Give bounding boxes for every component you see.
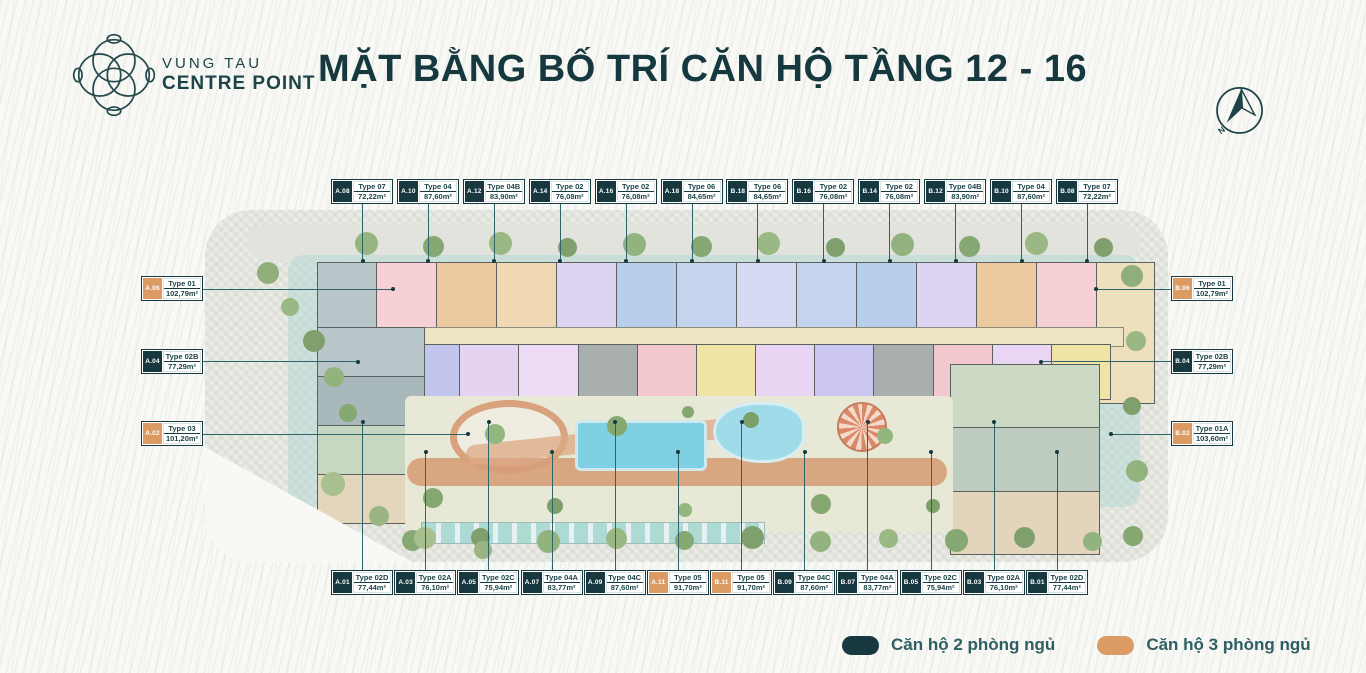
unit-type-label: Type 02 [552,182,588,192]
unit-code-badge: B.16 [794,181,813,202]
unit-callout: A.08 Type 07 72,22m² [331,179,393,204]
unit-info-box: Type 02C 75,94m² [479,572,517,593]
unit-type-label: Type 04C [796,573,832,583]
unit-callout: B.08 Type 07 72,22m² [1056,179,1118,204]
unit-type-label: Type 04 [420,182,456,192]
unit-area-label: 103,60m² [1194,434,1230,443]
unit-callout: A.03 Type 02A 76,10m² [394,570,456,595]
unit-info-box: Type 01 102,79m² [1193,278,1231,299]
unit-info-box: Type 04B 83,90m² [946,181,984,202]
unit-area-label: 76,08m² [881,192,917,201]
unit-code-badge: A.14 [531,181,550,202]
unit-area-label: 76,08m² [815,192,851,201]
leader-line [804,452,805,570]
unit-code-badge: B.04 [1173,351,1192,372]
unit-callout: B.10 Type 04 87,60m² [990,179,1052,204]
unit-code-badge: A.09 [586,572,605,593]
compass-north-label: N [1216,124,1227,136]
unit-info-box: Type 02A 76,10m² [985,572,1023,593]
legend-color-swatch [1097,636,1134,655]
leader-line [488,422,489,570]
unit-code-badge: A.11 [649,572,668,593]
unit-area-label: 102,79m² [164,289,200,298]
leader-line [757,204,758,261]
tree-row-right [1121,265,1143,287]
unit-type-label: Type 04B [486,182,522,192]
brand-name: VUNG TAU CENTRE POINT [162,56,315,94]
unit-area-label: 84,65m² [684,192,720,201]
unit-callout: A.16 Type 02 76,08m² [595,179,657,204]
right-tower [950,365,1100,555]
site-plan [205,210,1168,562]
leader-line [615,422,616,570]
leader-line [1096,289,1171,290]
unit-type-label: Type 04B [947,182,983,192]
unit-info-box: Type 02A 76,10m² [416,572,454,593]
leader-line [867,422,868,570]
legend: Căn hộ 2 phòng ngủ Căn hộ 3 phòng ngủ [842,635,1311,655]
unit-code-badge: B.07 [838,572,857,593]
unit-type-label: Type 05 [733,573,769,583]
unit-block [916,262,977,328]
unit-area-label: 77,29m² [1194,362,1230,371]
unit-callout: B.05 Type 02C 75,94m² [900,570,962,595]
unit-code-badge: A.18 [663,181,682,202]
unit-block [1036,262,1097,328]
unit-info-box: Type 01 102,79m² [163,278,201,299]
brand-line1: VUNG TAU [162,56,315,73]
unit-block [317,327,425,377]
unit-callout: A.06 Type 01 102,79m² [141,276,203,301]
unit-code-badge: B.03 [965,572,984,593]
legend-label: Căn hộ 3 phòng ngủ [1146,635,1310,655]
unit-callout: A.10 Type 04 87,60m² [397,179,459,204]
unit-block [736,262,797,328]
unit-block [755,344,815,400]
unit-callout: B.02 Type 01A 103,60m² [1171,421,1233,446]
unit-info-box: Type 06 84,65m² [683,181,721,202]
unit-block [637,344,697,400]
brand-logo-icon [72,33,156,117]
unit-info-box: Type 04A 83,77m² [858,572,896,593]
unit-code-badge: A.03 [396,572,415,593]
unit-code-badge: A.01 [333,572,352,593]
unit-callout: A.14 Type 02 76,08m² [529,179,591,204]
unit-block [950,364,1100,428]
unit-info-box: Type 02 76,08m² [814,181,852,202]
unit-block [616,262,677,328]
unit-code-badge: B.02 [1173,423,1192,444]
leader-line [428,204,429,261]
unit-area-label: 75,94m² [923,583,959,592]
unit-block [556,262,617,328]
leader-line [931,452,932,570]
unit-info-box: Type 03 101,20m² [163,423,201,444]
unit-area-label: 77,44m² [1049,583,1085,592]
unit-area-label: 87,60m² [796,583,832,592]
unit-callout: A.12 Type 04B 83,90m² [463,179,525,204]
unit-code-badge: B.01 [1028,572,1047,593]
unit-type-label: Type 02B [1194,352,1230,362]
leader-line [1111,434,1171,435]
unit-code-badge: A.02 [143,423,162,444]
legend-color-swatch [842,636,879,655]
unit-code-badge: B.08 [1058,181,1077,202]
unit-callout: B.07 Type 04A 83,77m² [836,570,898,595]
leader-line [425,452,426,570]
page-title: MẶT BẰNG BỐ TRÍ CĂN HỘ TẦNG 12 - 16 [318,48,1078,91]
unit-block [856,262,917,328]
leader-line [678,452,679,570]
unit-type-label: Type 02A [986,573,1022,583]
unit-area-label: 77,29m² [164,362,200,371]
unit-callout: A.07 Type 04A 83,77m² [521,570,583,595]
leader-line [552,452,553,570]
unit-info-box: Type 02C 75,94m² [922,572,960,593]
unit-callout: A.05 Type 02C 75,94m² [457,570,519,595]
unit-callout: A.04 Type 02B 77,29m² [141,349,203,374]
unit-type-label: Type 07 [354,182,390,192]
unit-block [459,344,519,400]
unit-info-box: Type 04 87,60m² [419,181,457,202]
unit-type-label: Type 02 [881,182,917,192]
unit-code-badge: A.10 [399,181,418,202]
unit-callout: B.16 Type 02 76,08m² [792,179,854,204]
unit-callout: B.12 Type 04B 83,90m² [924,179,986,204]
unit-code-badge: A.04 [143,351,162,372]
unit-callout: A.09 Type 04C 87,60m² [584,570,646,595]
unit-block [950,427,1100,491]
unit-info-box: Type 02 76,08m² [551,181,589,202]
unit-callout: B.06 Type 01 102,79m² [1171,276,1233,301]
unit-type-label: Type 02D [354,573,390,583]
unit-type-label: Type 01 [164,279,200,289]
unit-block [796,262,857,328]
leader-line [203,434,468,435]
leader-line [1041,361,1171,362]
leader-line [626,204,627,261]
unit-type-label: Type 04C [607,573,643,583]
tree-row-parking [257,262,279,284]
unit-type-label: Type 02D [1049,573,1085,583]
leader-line [203,289,393,290]
unit-callout: B.18 Type 06 84,65m² [726,179,788,204]
playground-wheel [837,402,887,452]
unit-callout: B.03 Type 02A 76,10m² [963,570,1025,595]
unit-type-label: Type 01A [1194,424,1230,434]
unit-callout: B.09 Type 04C 87,60m² [773,570,835,595]
courtyard [405,396,953,532]
unit-area-label: 87,60m² [607,583,643,592]
unit-area-label: 76,08m² [552,192,588,201]
unit-block [814,344,874,400]
unit-code-badge: B.18 [728,181,747,202]
unit-code-badge: B.11 [712,572,731,593]
leader-line [1057,452,1058,570]
unit-callout: B.04 Type 02B 77,29m² [1171,349,1233,374]
unit-area-label: 91,70m² [670,583,706,592]
unit-type-label: Type 03 [164,424,200,434]
unit-info-box: Type 04B 83,90m² [485,181,523,202]
leader-line [362,204,363,261]
leader-line [1087,204,1088,261]
unit-block [976,262,1037,328]
unit-area-label: 83,77m² [859,583,895,592]
unit-code-badge: B.09 [775,572,794,593]
unit-block [436,262,497,328]
unit-type-label: Type 02C [480,573,516,583]
unit-block [873,344,933,400]
unit-area-label: 75,94m² [480,583,516,592]
leader-line [494,204,495,261]
unit-info-box: Type 02B 77,29m² [1193,351,1231,372]
floorplan-poster: VUNG TAU CENTRE POINT MẶT BẰNG BỐ TRÍ CĂ… [0,0,1366,673]
leader-line [692,204,693,261]
callouts-bottom: A.01 Type 02D 77,44m² A.03 Type 02A 76,1… [331,570,1088,595]
unit-info-box: Type 07 72,22m² [1078,181,1116,202]
unit-block [578,344,638,400]
unit-info-box: Type 05 91,70m² [732,572,770,593]
kids-pool [713,402,805,463]
unit-block [518,344,578,400]
unit-area-label: 102,79m² [1194,289,1230,298]
callouts-top: A.08 Type 07 72,22m² A.10 Type 04 87,60m… [331,179,1118,204]
unit-info-box: Type 02 76,08m² [880,181,918,202]
unit-info-box: Type 02 76,08m² [617,181,655,202]
unit-callout: A.01 Type 02D 77,44m² [331,570,393,595]
unit-area-label: 84,65m² [749,192,785,201]
unit-callout: A.18 Type 06 84,65m² [661,179,723,204]
brand-line2: CENTRE POINT [162,73,315,94]
leader-line [889,204,890,261]
unit-callout: A.11 Type 05 91,70m² [647,570,709,595]
unit-info-box: Type 04 87,60m² [1012,181,1050,202]
unit-area-label: 83,77m² [544,583,580,592]
unit-type-label: Type 04A [544,573,580,583]
legend-item: Căn hộ 2 phòng ngủ [842,635,1055,655]
leader-line [1021,204,1022,261]
unit-area-label: 72,22m² [1079,192,1115,201]
tree-row-top [355,232,378,255]
unit-callout: B.14 Type 02 76,08m² [858,179,920,204]
tile-walkway [421,522,765,544]
unit-info-box: Type 02D 77,44m² [1048,572,1086,593]
unit-code-badge: A.16 [597,181,616,202]
unit-type-label: Type 07 [1079,182,1115,192]
unit-area-label: 72,22m² [354,192,390,201]
unit-code-badge: A.12 [465,181,484,202]
unit-code-badge: B.06 [1173,278,1192,299]
leader-line [362,422,363,570]
unit-info-box: Type 02D 77,44m² [353,572,391,593]
unit-block [676,262,737,328]
unit-type-label: Type 06 [749,182,785,192]
unit-area-label: 101,20m² [164,434,200,443]
unit-code-badge: B.12 [926,181,945,202]
unit-info-box: Type 02B 77,29m² [163,351,201,372]
unit-type-label: Type 02 [618,182,654,192]
legend-label: Căn hộ 2 phòng ngủ [891,635,1055,655]
unit-area-label: 87,60m² [1013,192,1049,201]
unit-type-label: Type 02A [417,573,453,583]
unit-area-label: 76,08m² [618,192,654,201]
leader-line [994,422,995,570]
unit-type-label: Type 04 [1013,182,1049,192]
callouts-right: B.06 Type 01 102,79m² B.04 Type 02B 77,2… [1171,276,1233,446]
top-unit-strip [377,262,1097,328]
unit-area-label: 87,60m² [420,192,456,201]
leader-line [823,204,824,261]
unit-area-label: 83,90m² [947,192,983,201]
unit-type-label: Type 02B [164,352,200,362]
unit-type-label: Type 06 [684,182,720,192]
compass-icon: N [1208,80,1270,142]
unit-block [496,262,557,328]
unit-type-label: Type 01 [1194,279,1230,289]
unit-info-box: Type 07 72,22m² [353,181,391,202]
unit-block [950,491,1100,555]
unit-code-badge: A.08 [333,181,352,202]
unit-block [317,262,381,331]
unit-info-box: Type 01A 103,60m² [1193,423,1231,444]
unit-code-badge: B.05 [902,572,921,593]
leader-line [203,361,358,362]
unit-callout: B.11 Type 05 91,70m² [710,570,772,595]
unit-callout: A.02 Type 03 101,20m² [141,421,203,446]
unit-code-badge: B.10 [992,181,1011,202]
unit-info-box: Type 04A 83,77m² [543,572,581,593]
unit-type-label: Type 02 [815,182,851,192]
unit-code-badge: A.05 [459,572,478,593]
legend-item: Căn hộ 3 phòng ngủ [1097,635,1310,655]
swimming-pool [575,420,707,471]
unit-area-label: 91,70m² [733,583,769,592]
unit-type-label: Type 05 [670,573,706,583]
unit-area-label: 76,10m² [417,583,453,592]
unit-callout: B.01 Type 02D 77,44m² [1026,570,1088,595]
unit-area-label: 76,10m² [986,583,1022,592]
unit-code-badge: A.07 [523,572,542,593]
unit-block [376,262,437,328]
unit-code-badge: B.14 [860,181,879,202]
unit-block [696,344,756,400]
unit-code-badge: A.06 [143,278,162,299]
callouts-left: A.06 Type 01 102,79m² A.04 Type 02B 77,2… [141,276,203,446]
palm-trees [321,472,345,496]
unit-area-label: 83,90m² [486,192,522,201]
unit-area-label: 77,44m² [354,583,390,592]
unit-info-box: Type 06 84,65m² [748,181,786,202]
leader-line [955,204,956,261]
leader-line [560,204,561,261]
unit-type-label: Type 04A [859,573,895,583]
unit-info-box: Type 05 91,70m² [669,572,707,593]
leader-line [741,422,742,570]
unit-type-label: Type 02C [923,573,959,583]
unit-info-box: Type 04C 87,60m² [606,572,644,593]
unit-info-box: Type 04C 87,60m² [795,572,833,593]
